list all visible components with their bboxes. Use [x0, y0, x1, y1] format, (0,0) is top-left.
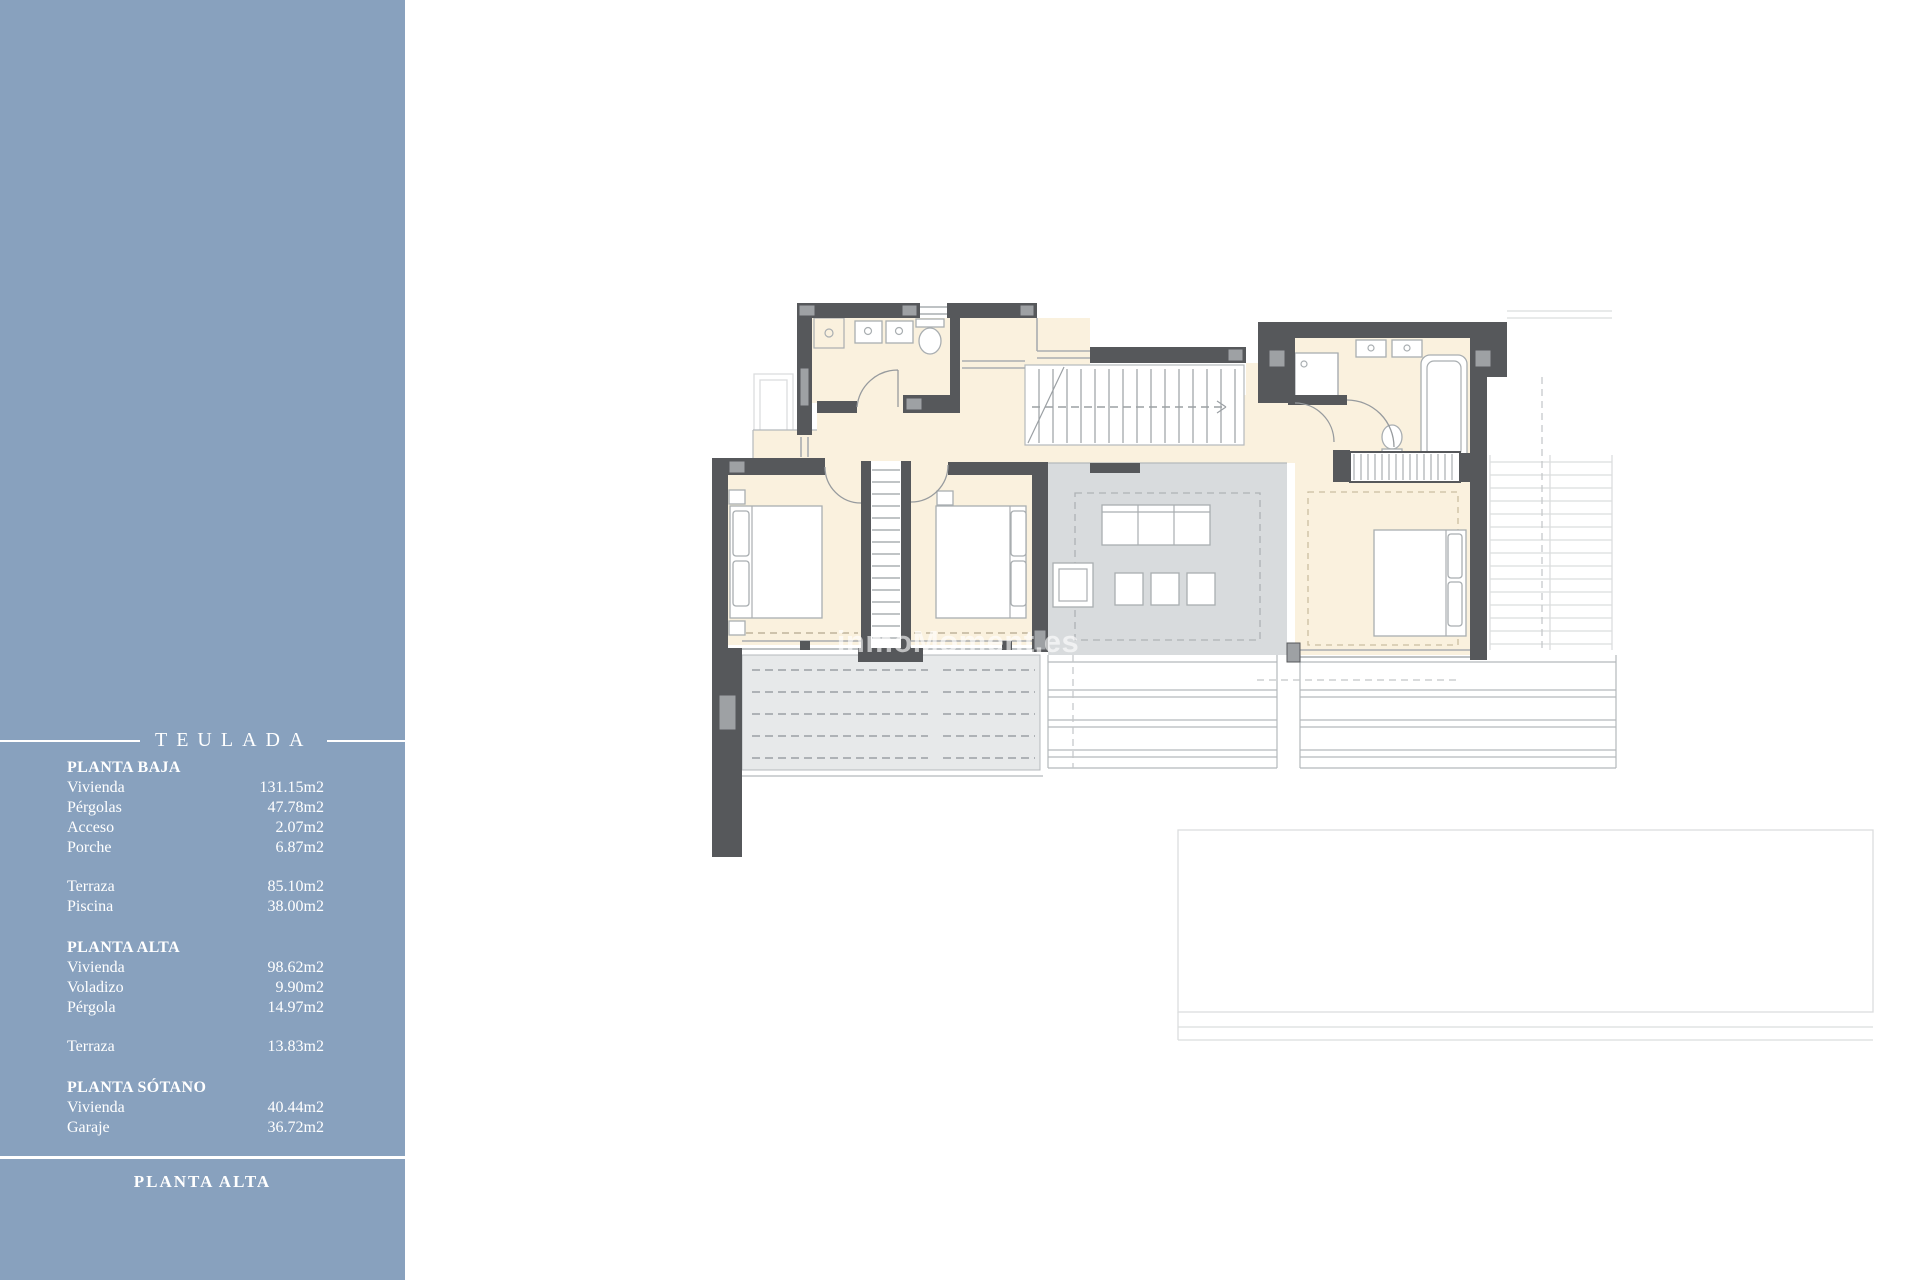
area-value: 85.10m2 — [268, 877, 324, 897]
title-row: TEULADA — [0, 729, 405, 752]
title-rule-right — [327, 740, 405, 742]
area-label: Piscina — [67, 897, 113, 917]
area-row: Vivienda98.62m2 — [67, 958, 324, 978]
area-label: Acceso — [67, 818, 114, 838]
area-row: Pérgolas47.78m2 — [67, 798, 324, 818]
area-value: 9.90m2 — [276, 978, 324, 998]
area-section: PLANTA ALTAVivienda98.62m2Voladizo9.90m2… — [67, 938, 324, 1057]
area-section: PLANTA SÓTANOVivienda40.44m2Garaje36.72m… — [67, 1078, 324, 1138]
area-label: Vivienda — [67, 1098, 125, 1118]
watermark: inmoMoment.es — [837, 624, 1079, 659]
area-row: Terraza85.10m2 — [67, 877, 324, 897]
area-label: Porche — [67, 838, 111, 858]
area-group: Terraza13.83m2 — [67, 1037, 324, 1057]
area-row: Vivienda131.15m2 — [67, 778, 324, 798]
staircase — [1025, 365, 1244, 445]
project-title: TEULADA — [155, 729, 312, 752]
area-value: 47.78m2 — [268, 798, 324, 818]
area-label: Pérgolas — [67, 798, 122, 818]
area-label: Vivienda — [67, 958, 125, 978]
area-row: Piscina38.00m2 — [67, 897, 324, 917]
area-label: Pérgola — [67, 998, 116, 1018]
area-summary: PLANTA BAJAVivienda131.15m2Pérgolas47.78… — [67, 758, 324, 1138]
terrace-pergola — [712, 655, 1043, 776]
bed-left — [729, 490, 822, 635]
area-row: Vivienda40.44m2 — [67, 1098, 324, 1118]
terrace-railing — [1048, 655, 1616, 768]
area-value: 14.97m2 — [268, 998, 324, 1018]
area-row: Terraza13.83m2 — [67, 1037, 324, 1057]
area-label: Terraza — [67, 1037, 115, 1057]
area-row: Pérgola14.97m2 — [67, 998, 324, 1018]
section-heading: PLANTA BAJA — [67, 758, 324, 778]
area-label: Garaje — [67, 1118, 110, 1138]
area-row: Porche6.87m2 — [67, 838, 324, 858]
stair-shaft — [871, 461, 901, 648]
area-value: 2.07m2 — [276, 818, 324, 838]
area-label: Vivienda — [67, 778, 125, 798]
area-value: 13.83m2 — [268, 1037, 324, 1057]
area-group: Vivienda40.44m2Garaje36.72m2 — [67, 1098, 324, 1138]
area-group: Terraza85.10m2Piscina38.00m2 — [67, 877, 324, 917]
title-rule-left — [0, 740, 140, 742]
page: inmoMoment.es TEULADA PLANTA BAJAViviend… — [0, 0, 1920, 1280]
bed-middle — [936, 491, 1026, 618]
area-value: 38.00m2 — [268, 897, 324, 917]
area-label: Terraza — [67, 877, 115, 897]
area-value: 98.62m2 — [268, 958, 324, 978]
area-row: Acceso2.07m2 — [67, 818, 324, 838]
area-row: Voladizo9.90m2 — [67, 978, 324, 998]
section-heading: PLANTA SÓTANO — [67, 1078, 324, 1098]
area-group: Vivienda131.15m2Pérgolas47.78m2Acceso2.0… — [67, 778, 324, 858]
area-value: 40.44m2 — [268, 1098, 324, 1118]
footer-divider — [0, 1156, 405, 1159]
area-group: Vivienda98.62m2Voladizo9.90m2Pérgola14.9… — [67, 958, 324, 1018]
wardrobe — [1350, 452, 1460, 482]
area-row: Garaje36.72m2 — [67, 1118, 324, 1138]
area-section: PLANTA BAJAVivienda131.15m2Pérgolas47.78… — [67, 758, 324, 917]
sidebar: TEULADA PLANTA BAJAVivienda131.15m2Pérgo… — [0, 0, 405, 1280]
living-void — [1048, 463, 1287, 655]
area-value: 6.87m2 — [276, 838, 324, 858]
area-value: 36.72m2 — [268, 1118, 324, 1138]
floor-label: PLANTA ALTA — [0, 1172, 405, 1192]
bed-master — [1374, 530, 1466, 636]
area-label: Voladizo — [67, 978, 124, 998]
section-heading: PLANTA ALTA — [67, 938, 324, 958]
area-value: 131.15m2 — [260, 778, 324, 798]
